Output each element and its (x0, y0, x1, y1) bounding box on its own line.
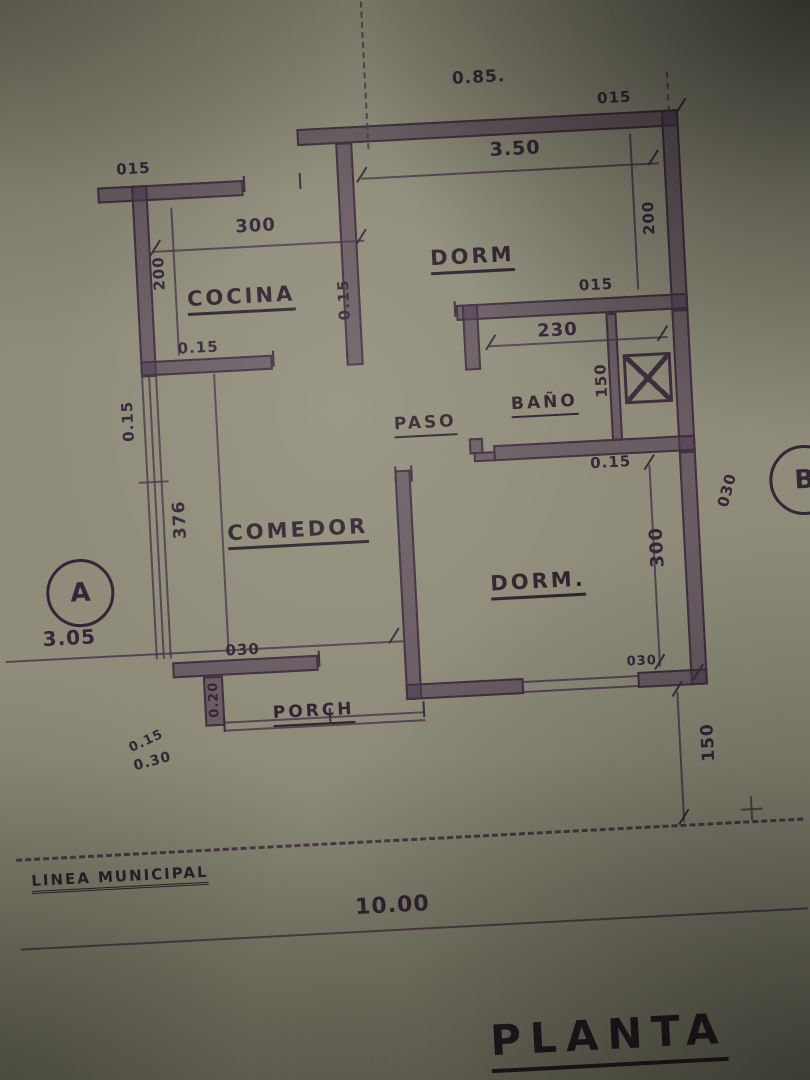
dim-porch-wall: 0.20 (206, 681, 223, 718)
dim-line-cocina-depth (170, 208, 180, 356)
tick (485, 334, 496, 350)
vent-shaft-window-icon (623, 352, 674, 404)
wall-right-lower (679, 451, 708, 686)
room-label-cocina: COCINA (186, 281, 296, 316)
dim-dorm-wall: 015 (578, 275, 613, 295)
room-label-dorm-bottom: DORM. (490, 567, 587, 601)
dim-line-dorm-depth (629, 134, 639, 290)
dim-bano-wall: 0.15 (590, 452, 632, 472)
blueprint-photo: 0.85. 015 300 200 0.15 0.15 0.15 3.50 01… (0, 0, 810, 1080)
tick (150, 240, 161, 256)
dim-comedor-depth: 376 (169, 500, 191, 539)
dim-divider-wall: 0.15 (334, 279, 354, 321)
dim-dorm-depth: 200 (639, 200, 659, 235)
wall-bano-west (462, 304, 481, 371)
window-bottom-line1 (524, 675, 640, 683)
dim-left-wall: 0.15 (118, 400, 138, 442)
door-jamb (243, 176, 246, 192)
dim-cocina-width: 300 (235, 214, 277, 237)
dim-cocina-wall: 0.15 (177, 338, 219, 358)
dim-line-setback (676, 692, 685, 822)
dim-cocina-depth: 200 (149, 256, 169, 291)
window-bottom-line2 (524, 685, 640, 693)
wall-right-mid (671, 309, 695, 452)
dashed-extension-top-right (666, 72, 670, 112)
wall-bottom-left (406, 678, 525, 700)
axis-marker-a: A (45, 557, 116, 628)
room-label-porch: PORCH (272, 699, 355, 727)
dim-top-note: 0.85. (451, 66, 505, 89)
dim-bano-depth: 150 (591, 363, 611, 398)
dim-dorm2-depth: 300 (645, 527, 668, 569)
door-jamb (394, 466, 397, 482)
axis-marker-b-label: B (794, 465, 810, 496)
dim-line-dorm-width (361, 162, 659, 180)
dim-comedor-wall: 030 (225, 640, 260, 660)
wall-top-dorm (296, 109, 678, 146)
dim-line-cocina-width (153, 240, 365, 253)
tick (675, 98, 686, 114)
room-label-dorm-top: DORM (430, 242, 516, 275)
dim-frontage: 10.00 (355, 891, 431, 920)
dim-top-right-wall: 015 (597, 88, 632, 108)
porch-edge-tick1 (223, 716, 226, 732)
dim-line-comedor-depth (213, 374, 230, 656)
door-jamb (272, 351, 275, 367)
axis-marker-a-label: A (69, 578, 91, 609)
dim-left-offset: 3.05 (42, 624, 97, 651)
room-label-comedor: COMEDOR (227, 514, 369, 550)
room-label-paso: PASO (393, 411, 457, 438)
municipal-line-label: LINEA MUNICIPAL (31, 863, 209, 894)
municipal-dashed-line (16, 818, 803, 862)
dim-dorm-width: 3.50 (489, 136, 541, 161)
axis-marker-b: B (768, 443, 810, 517)
porch-edge-tick3 (422, 701, 425, 717)
dim-right-wall: 030 (714, 471, 740, 509)
wall-right-upper (661, 109, 688, 310)
door-jamb (299, 173, 302, 189)
dim-bano-width: 230 (537, 319, 579, 342)
wall-cocina-south (140, 355, 273, 377)
wall-cocina-top (97, 180, 244, 204)
room-label-bano: BAÑO (511, 391, 579, 418)
dim-top-left-wall: 015 (116, 159, 151, 179)
drawing-title: PLANTA (489, 1004, 729, 1073)
dim-dorm2-wall: 030 (626, 653, 657, 670)
door-jamb (410, 466, 413, 482)
tick (356, 167, 367, 183)
wall-dorm-south (456, 293, 689, 321)
tick (657, 325, 668, 341)
door-jamb (318, 651, 321, 667)
dim-front-setback: 150 (697, 723, 719, 762)
wall-bano-door-jog (474, 451, 496, 462)
floor-plan: 0.85. 015 300 200 0.15 0.15 0.15 3.50 01… (0, 0, 810, 1080)
tick (355, 229, 366, 245)
door-jamb (454, 301, 457, 317)
wall-comedor-dorm-divider (394, 470, 422, 701)
